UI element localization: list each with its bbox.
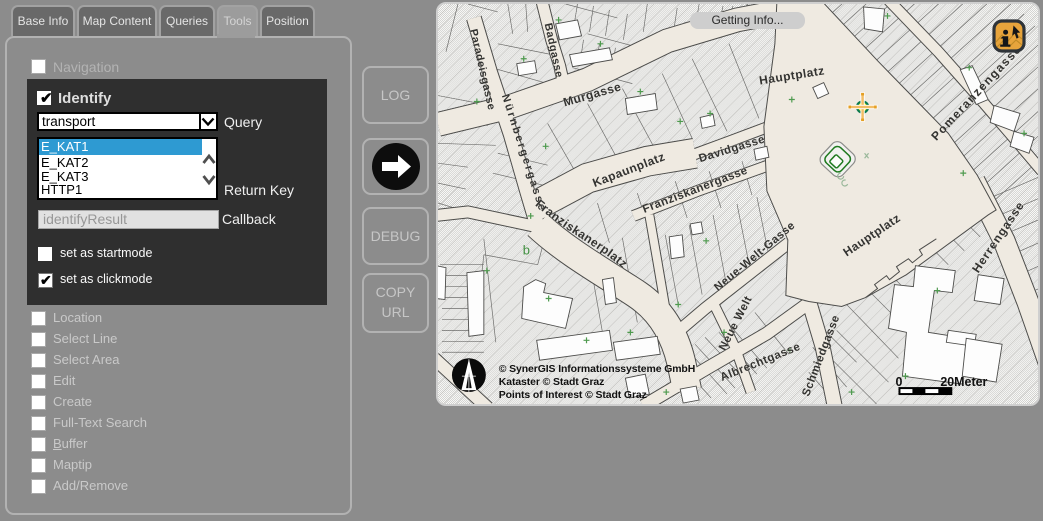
svg-text:© SynerGIS Informationssysteme: © SynerGIS Informationssysteme GmbH: [499, 364, 695, 375]
svg-text:b: b: [523, 243, 530, 258]
svg-text:Points of Interest © Stadt Gra: Points of Interest © Stadt Graz: [499, 390, 647, 401]
svg-text:20Meter: 20Meter: [940, 375, 987, 389]
svg-text:Kataster © Stadt Graz: Kataster © Stadt Graz: [499, 377, 604, 388]
svg-text:0: 0: [895, 375, 902, 389]
